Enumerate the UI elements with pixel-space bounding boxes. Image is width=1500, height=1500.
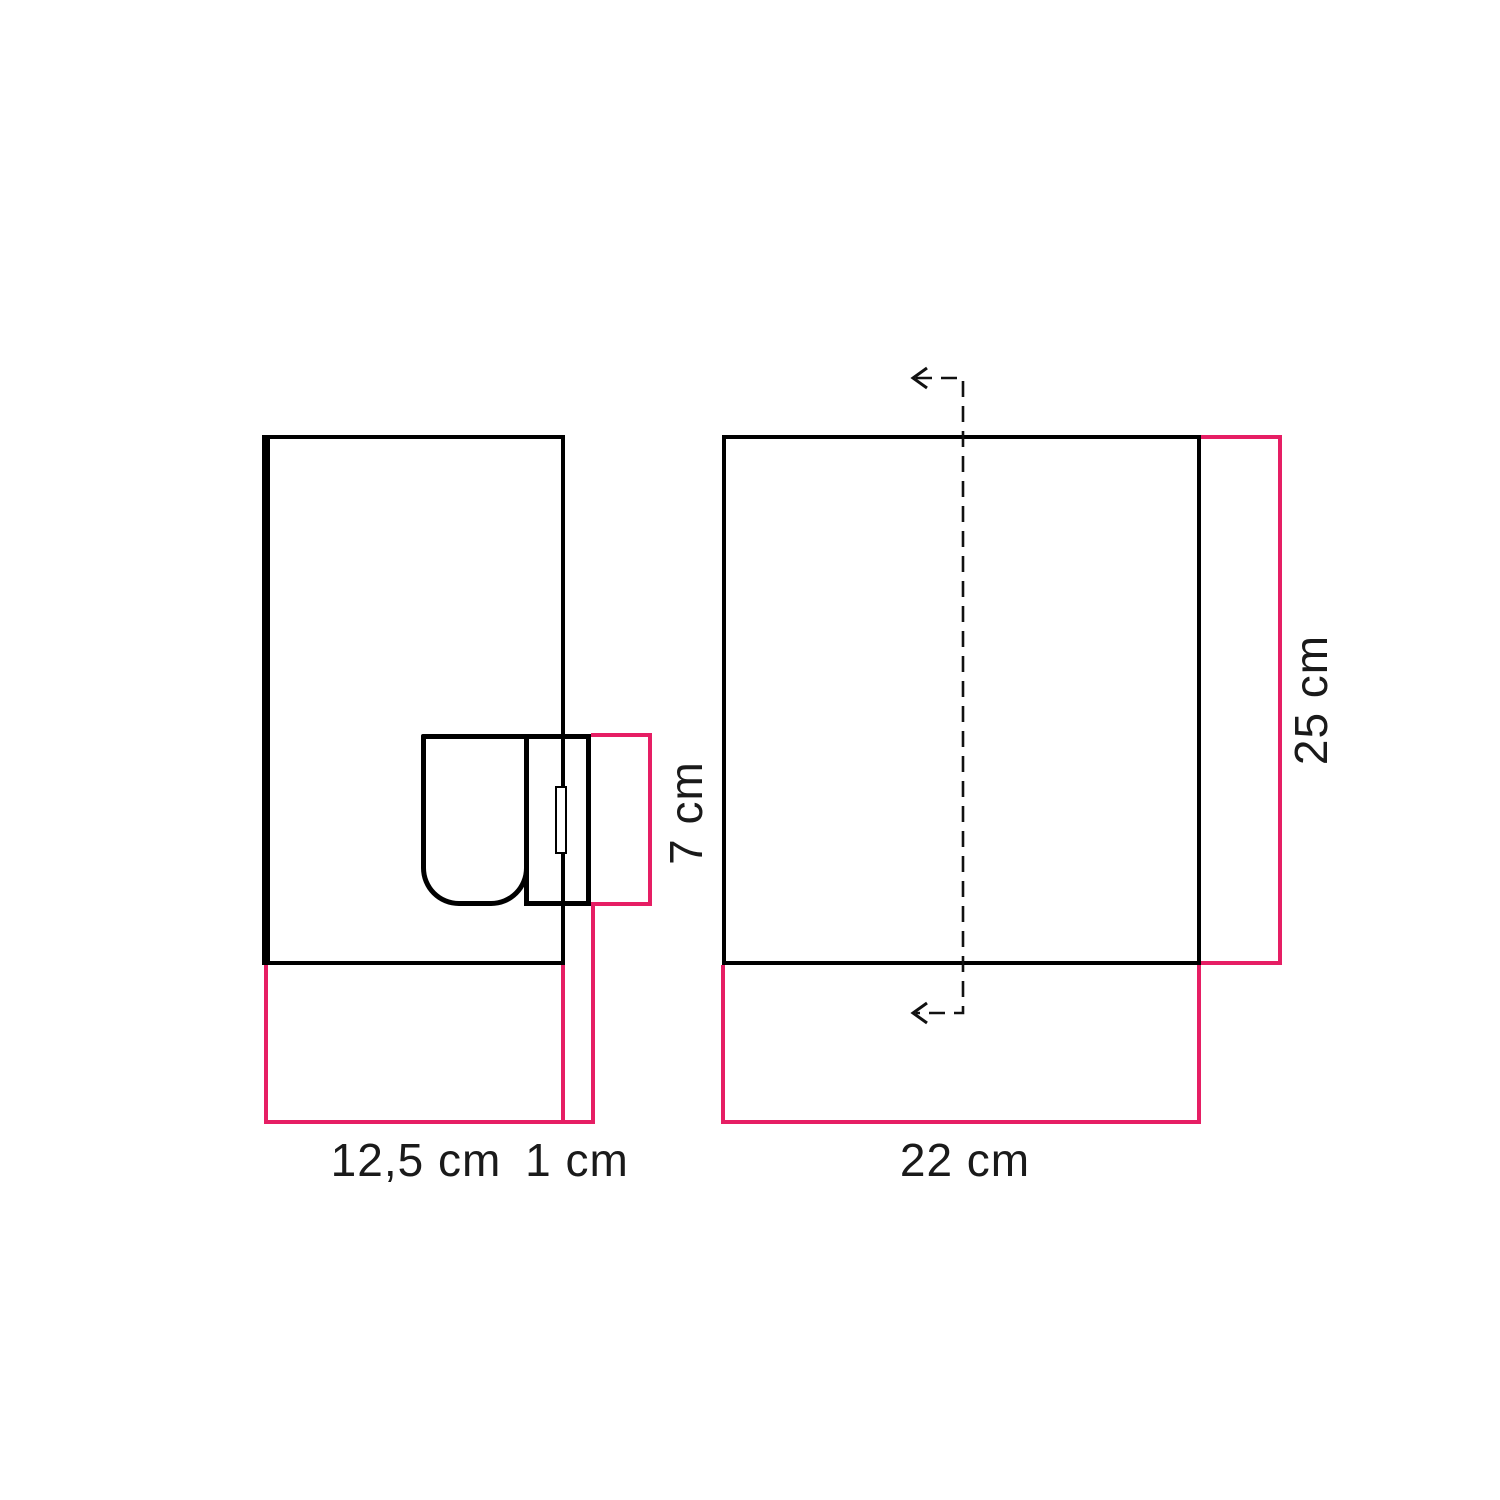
dim-bracket-height bbox=[1201, 435, 1282, 965]
front-height-label: 25 cm bbox=[1285, 550, 1337, 850]
dim-line-side-left bbox=[264, 965, 268, 1124]
dim-line-side-bottom bbox=[264, 1120, 595, 1124]
cable-centerline bbox=[850, 350, 1070, 1050]
dim-bracket-holder-height bbox=[591, 733, 652, 906]
dimension-drawing: 12,5 cm 1 cm 7 cm 22 cm 25 cm bbox=[0, 0, 1500, 1500]
holder-height-label: 7 cm bbox=[660, 663, 712, 963]
dim-line-side-divider bbox=[561, 965, 565, 1124]
front-width-label: 22 cm bbox=[815, 1134, 1115, 1186]
centerline-dashed-path bbox=[916, 378, 963, 1013]
dim-line-gap-right bbox=[591, 902, 595, 1124]
switch-slot bbox=[555, 786, 567, 854]
socket-cup-outline bbox=[421, 734, 529, 906]
side-gap-label: 1 cm bbox=[477, 1134, 677, 1186]
